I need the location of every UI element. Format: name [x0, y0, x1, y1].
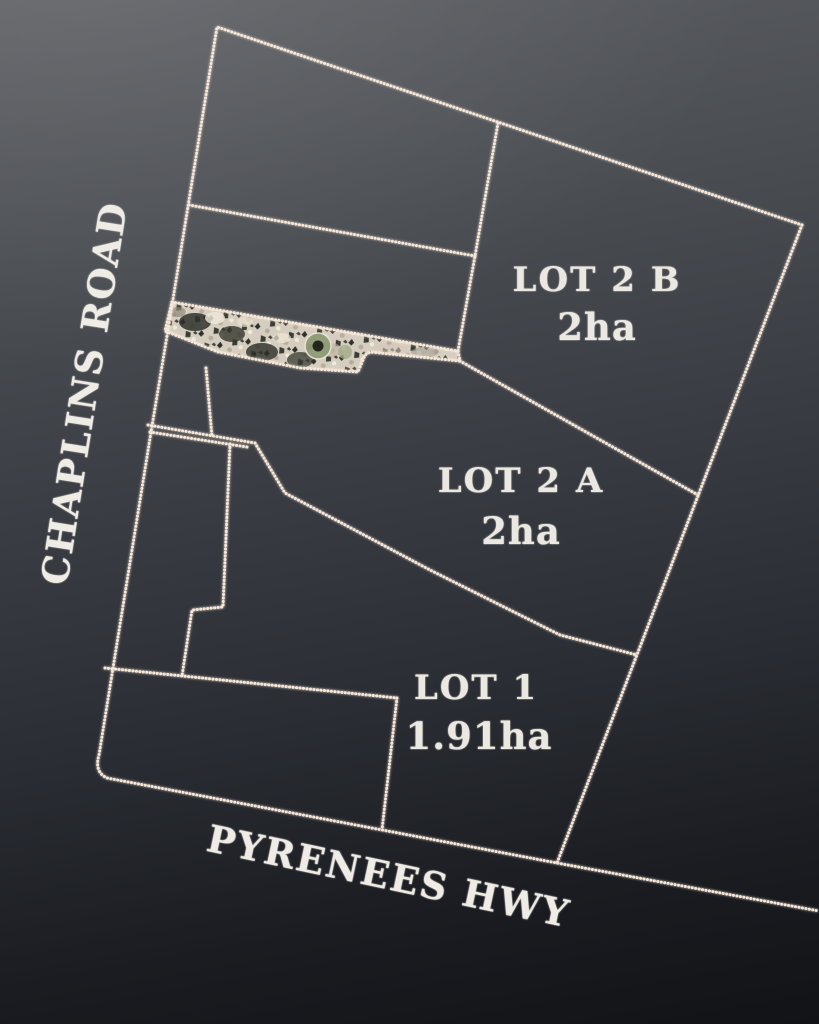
bottom-block-north-boundary	[105, 668, 397, 698]
road-label-chaplins-road: CHAPLINS ROAD	[32, 198, 136, 588]
lot-2b-west-boundary	[458, 123, 498, 351]
lot-1-area-label: 1.91ha	[406, 714, 553, 758]
driveway-connector	[206, 368, 212, 437]
aerial-strip	[150, 290, 480, 390]
lot-2b-name-label: LOT 2 B	[513, 260, 682, 300]
road-label-pyrenees-hwy: PYRENEES HWY	[203, 816, 574, 936]
lot-2a-area-label: 2ha	[481, 509, 561, 553]
lot-2b-area-label: 2ha	[557, 305, 637, 349]
north-paddock-boundary	[189, 205, 475, 256]
lot-2a-name-label: LOT 2 A	[438, 461, 605, 501]
bottom-block-east-boundary	[382, 698, 397, 830]
lot-1-name-label: LOT 1	[414, 668, 538, 708]
site-plan: LOT 2 B 2ha LOT 2 A 2ha LOT 1 1.91ha CHA…	[0, 0, 819, 1024]
site-plan-svg: LOT 2 B 2ha LOT 2 A 2ha LOT 1 1.91ha CHA…	[0, 0, 819, 1024]
lot-1-lot-2a-boundary	[148, 425, 637, 655]
homestead-outline	[182, 444, 230, 676]
